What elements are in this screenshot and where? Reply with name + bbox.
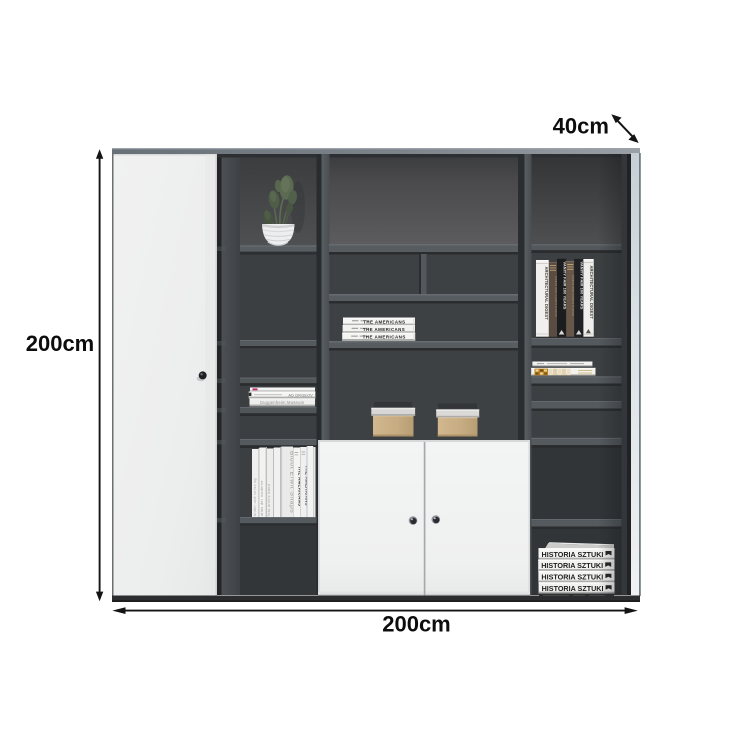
svg-text:200cm: 200cm — [382, 611, 451, 636]
svg-text:THE AMERICANS: THE AMERICANS — [363, 319, 405, 324]
svg-text:HISTORIA SZTUKI: HISTORIA SZTUKI — [542, 550, 604, 559]
svg-text:HISTORIA SZTUKI: HISTORIA SZTUKI — [541, 561, 603, 570]
svg-text:ARCHITECTURAL DIGEST: ARCHITECTURAL DIGEST — [544, 267, 549, 321]
svg-text:Guggenheim Museum: Guggenheim Museum — [260, 400, 305, 405]
svg-text:200cm: 200cm — [26, 331, 95, 356]
svg-text:HISTORIA SZTUKI: HISTORIA SZTUKI — [542, 584, 604, 593]
svg-text:atlas der moderne: atlas der moderne — [260, 480, 264, 516]
svg-text:foto archiv band: foto archiv band — [267, 484, 271, 516]
svg-text:THE AMERICANS: THE AMERICANS — [363, 327, 405, 332]
svg-text:ARCHITECTURAL DIGEST: ARCHITECTURAL DIGEST — [589, 266, 594, 320]
svg-text:40cm: 40cm — [553, 114, 609, 139]
svg-text:HISTORIA SZTUKI: HISTORIA SZTUKI — [541, 573, 603, 582]
svg-text:bilder und verse kg: bilder und verse kg — [253, 478, 257, 516]
svg-text:AD DRGEOV: AD DRGEOV — [288, 393, 313, 397]
svg-text:THE AMERICANS: THE AMERICANS — [363, 335, 406, 340]
